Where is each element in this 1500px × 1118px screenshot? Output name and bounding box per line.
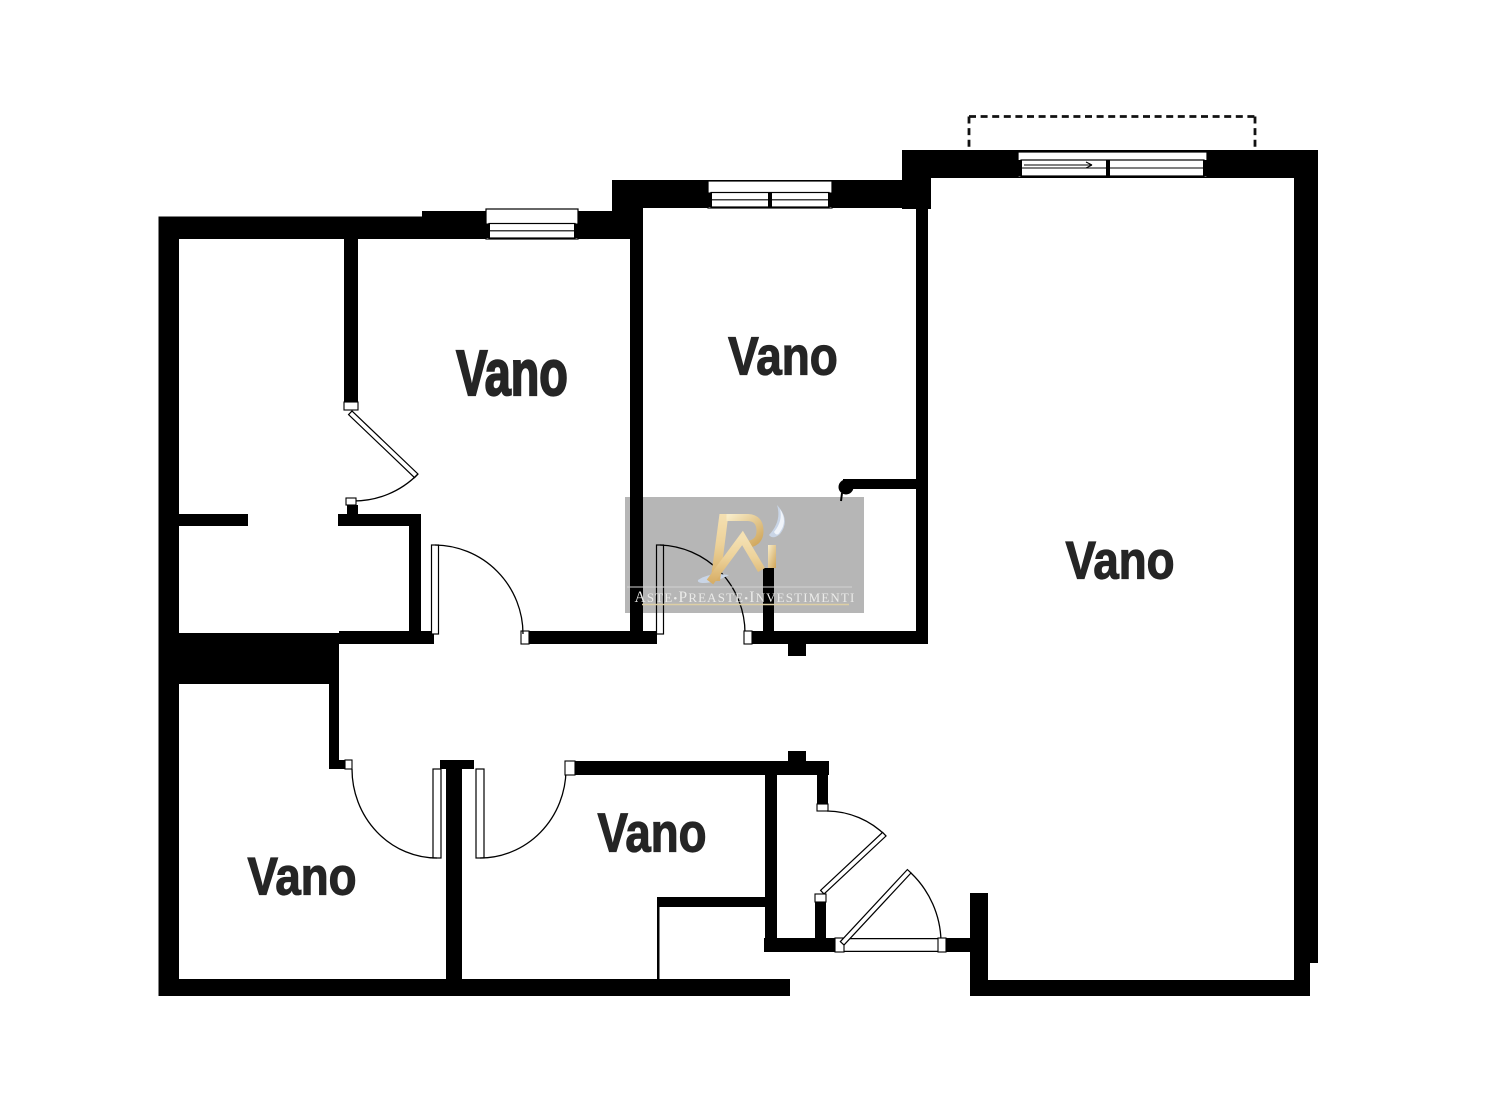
svg-text:Vano: Vano [728,326,838,386]
svg-text:Vano: Vano [1065,532,1174,591]
svg-text:Vano: Vano [597,801,706,863]
svg-text:Vano: Vano [247,848,356,907]
svg-text:Vano: Vano [456,337,568,409]
